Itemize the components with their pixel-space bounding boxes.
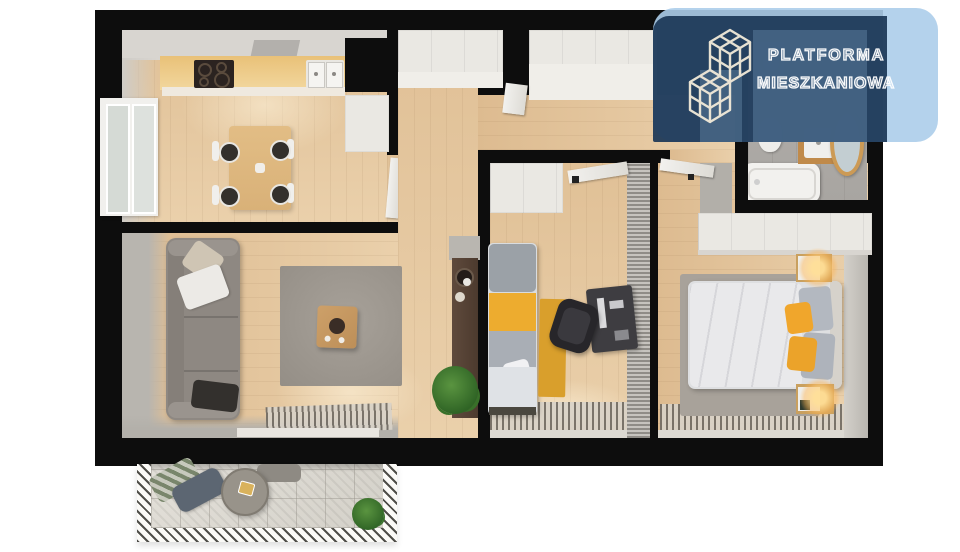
brand-name-line1: PLATFORMA bbox=[768, 48, 885, 64]
dining-chair bbox=[268, 138, 290, 160]
sofa-seam bbox=[184, 316, 238, 318]
faucet bbox=[314, 72, 318, 76]
hallway-plant bbox=[432, 366, 478, 414]
door-handle bbox=[688, 174, 694, 180]
coffee-table bbox=[316, 305, 357, 348]
balcony bbox=[137, 464, 397, 542]
table-deco bbox=[324, 336, 330, 342]
nightstand-lamp-glow bbox=[798, 248, 838, 288]
hall-wardrobe-right-front bbox=[529, 64, 657, 100]
bed-head-cushion bbox=[489, 244, 536, 292]
counter-front-edge bbox=[162, 87, 345, 96]
sofa-seam bbox=[184, 370, 238, 372]
dining-chair bbox=[268, 182, 290, 204]
table-centerpiece bbox=[255, 163, 265, 173]
notebook bbox=[614, 329, 629, 340]
burner bbox=[199, 77, 209, 87]
master-wardrobe bbox=[698, 213, 872, 255]
kitchen-window bbox=[100, 98, 158, 216]
keyboard bbox=[609, 300, 624, 309]
pillow-yellow bbox=[784, 301, 814, 334]
burner bbox=[214, 72, 230, 88]
burner bbox=[198, 63, 212, 77]
kitchen-tall-cabinet bbox=[345, 95, 389, 152]
deco-dish bbox=[455, 292, 465, 302]
bed-foot bbox=[489, 407, 536, 415]
door-handle bbox=[572, 176, 579, 183]
bathtub-faucet bbox=[754, 179, 760, 185]
small-bedroom-wardrobe bbox=[490, 163, 563, 213]
window-pane bbox=[132, 104, 156, 214]
master-wardrobe-front bbox=[698, 250, 872, 255]
sofa-pillow-dark bbox=[190, 379, 239, 412]
kitchen-corner-duct bbox=[345, 38, 398, 92]
living-left-shade bbox=[122, 233, 170, 438]
cooktop bbox=[194, 60, 234, 88]
bathtub bbox=[742, 163, 820, 203]
table-bowl bbox=[329, 318, 346, 335]
hall-wardrobe-left-front bbox=[398, 72, 503, 88]
bed-duvet bbox=[488, 367, 537, 409]
isometric-cubes-logo-icon bbox=[686, 26, 762, 126]
entrance-door bbox=[502, 83, 527, 115]
console-cabinet bbox=[449, 236, 480, 260]
faucet bbox=[332, 72, 336, 76]
bed-duvet bbox=[690, 283, 802, 387]
brand-name-line2: MIESZKANIOWA bbox=[757, 76, 895, 92]
sofa-backrest bbox=[168, 242, 184, 416]
balcony-door-threshold bbox=[237, 428, 379, 437]
brand-watermark-card: PLATFORMA MIESZKANIOWA bbox=[653, 8, 938, 142]
single-bed bbox=[488, 243, 537, 415]
table-deco bbox=[338, 337, 344, 343]
window-pane bbox=[106, 104, 130, 214]
dining-chair bbox=[216, 140, 238, 162]
kitchen-sink bbox=[306, 60, 344, 88]
table-cup bbox=[238, 480, 256, 496]
dining-chair bbox=[216, 184, 238, 206]
chair-cushion bbox=[555, 306, 592, 347]
pillow-yellow bbox=[786, 336, 817, 373]
floorplan-render: PLATFORMA MIESZKANIOWA bbox=[0, 0, 960, 552]
small-bedroom-threshold bbox=[490, 430, 627, 438]
balcony-table bbox=[221, 468, 269, 516]
balcony-plant bbox=[352, 498, 384, 530]
bed-yellow-blanket bbox=[489, 293, 536, 331]
nightstand-lamp-glow bbox=[800, 378, 840, 418]
master-threshold bbox=[658, 430, 868, 438]
double-bed bbox=[688, 281, 842, 389]
entrance-recess bbox=[505, 12, 529, 86]
deco-dish bbox=[463, 278, 471, 286]
bathroom-bottom-wall bbox=[735, 200, 883, 213]
